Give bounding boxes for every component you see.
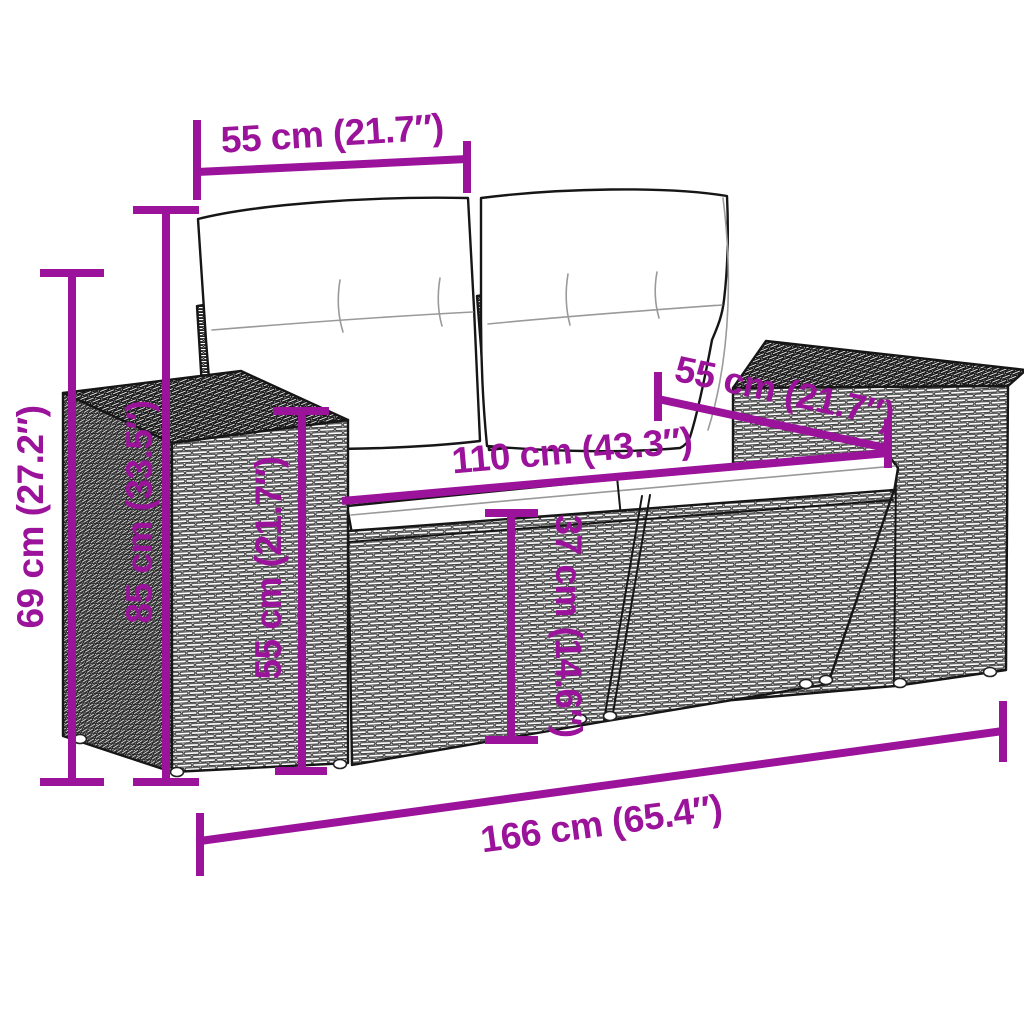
dim-label-back-cushion-width: 55 cm (21.7″) xyxy=(220,106,445,161)
foot xyxy=(984,668,997,677)
dim-label-back-height: 85 cm (33.5″) xyxy=(119,400,160,623)
dim-label-armrest-height: 55 cm (21.7″) xyxy=(248,456,289,679)
dim-line xyxy=(197,159,467,172)
back-cushion-right-body xyxy=(481,189,728,451)
seat-base xyxy=(348,490,894,765)
foot xyxy=(604,712,617,721)
foot xyxy=(171,768,184,777)
back-cushion-right xyxy=(481,189,728,451)
dimension-back-cushion-width: 55 cm (21.7″) xyxy=(197,106,467,200)
dimension-diagram: 55 cm (21.7″) 69 cm (27.2″) 85 cm (33.5″… xyxy=(0,0,1024,1024)
sofa-dimension-drawing: 55 cm (21.7″) 69 cm (27.2″) 85 cm (33.5″… xyxy=(0,0,1024,1024)
foot xyxy=(820,676,833,685)
dim-label-total-height: 69 cm (27.2″) xyxy=(10,405,51,628)
foot xyxy=(334,760,347,769)
foot xyxy=(894,679,907,688)
seat-base-front-face xyxy=(348,490,894,765)
dim-label-seat-height: 37 cm (14.6″) xyxy=(548,514,589,737)
foot xyxy=(800,680,813,689)
